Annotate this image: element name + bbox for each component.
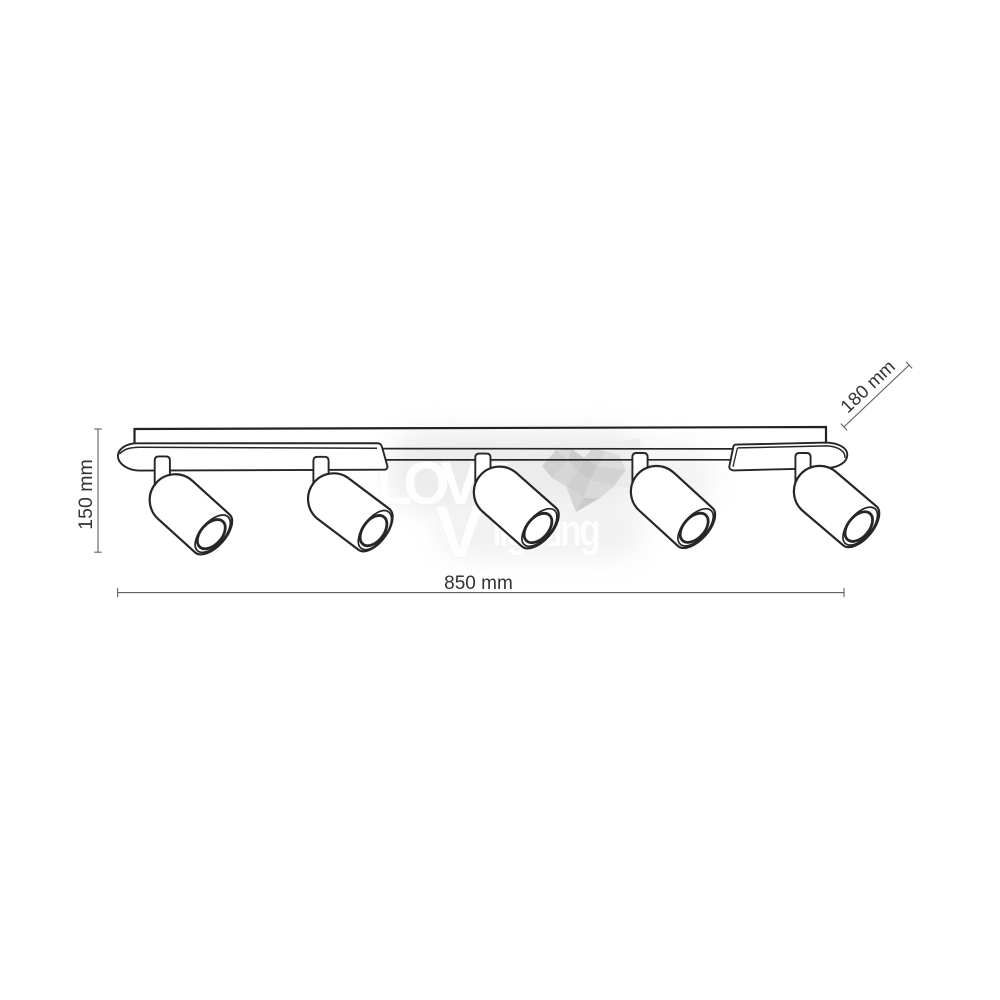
svg-text:850 mm: 850 mm <box>444 573 513 594</box>
svg-text:150 mm: 150 mm <box>75 459 97 529</box>
svg-text:180 mm: 180 mm <box>836 356 899 417</box>
